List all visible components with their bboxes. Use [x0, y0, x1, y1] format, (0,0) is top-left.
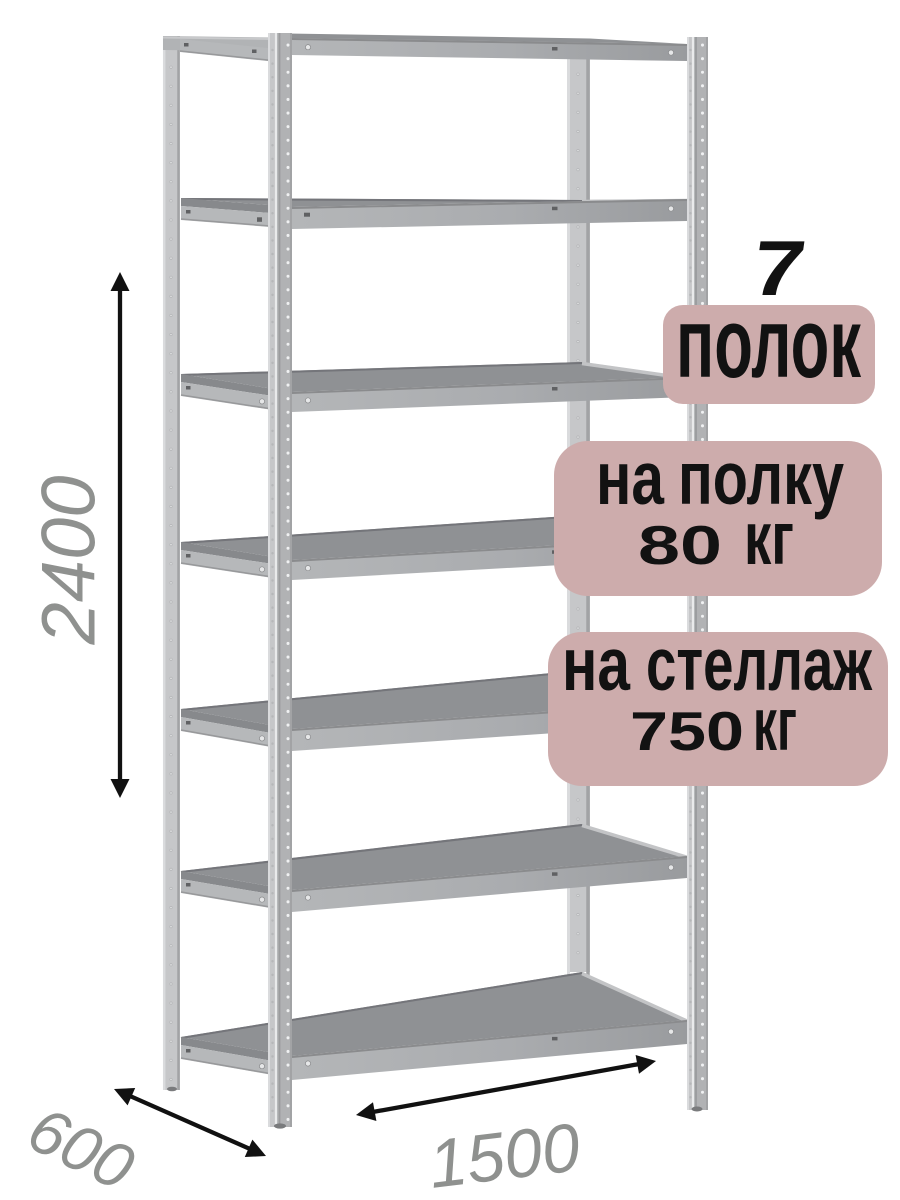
svg-text:80: 80 [638, 514, 722, 576]
svg-text:на: на [562, 622, 631, 706]
svg-text:кг: кг [744, 496, 794, 580]
svg-text:2400: 2400 [27, 475, 112, 645]
svg-text:кг: кг [753, 682, 797, 766]
svg-text:полок: полок [676, 287, 861, 398]
svg-text:750: 750 [630, 700, 744, 762]
svg-text:на: на [596, 436, 665, 520]
